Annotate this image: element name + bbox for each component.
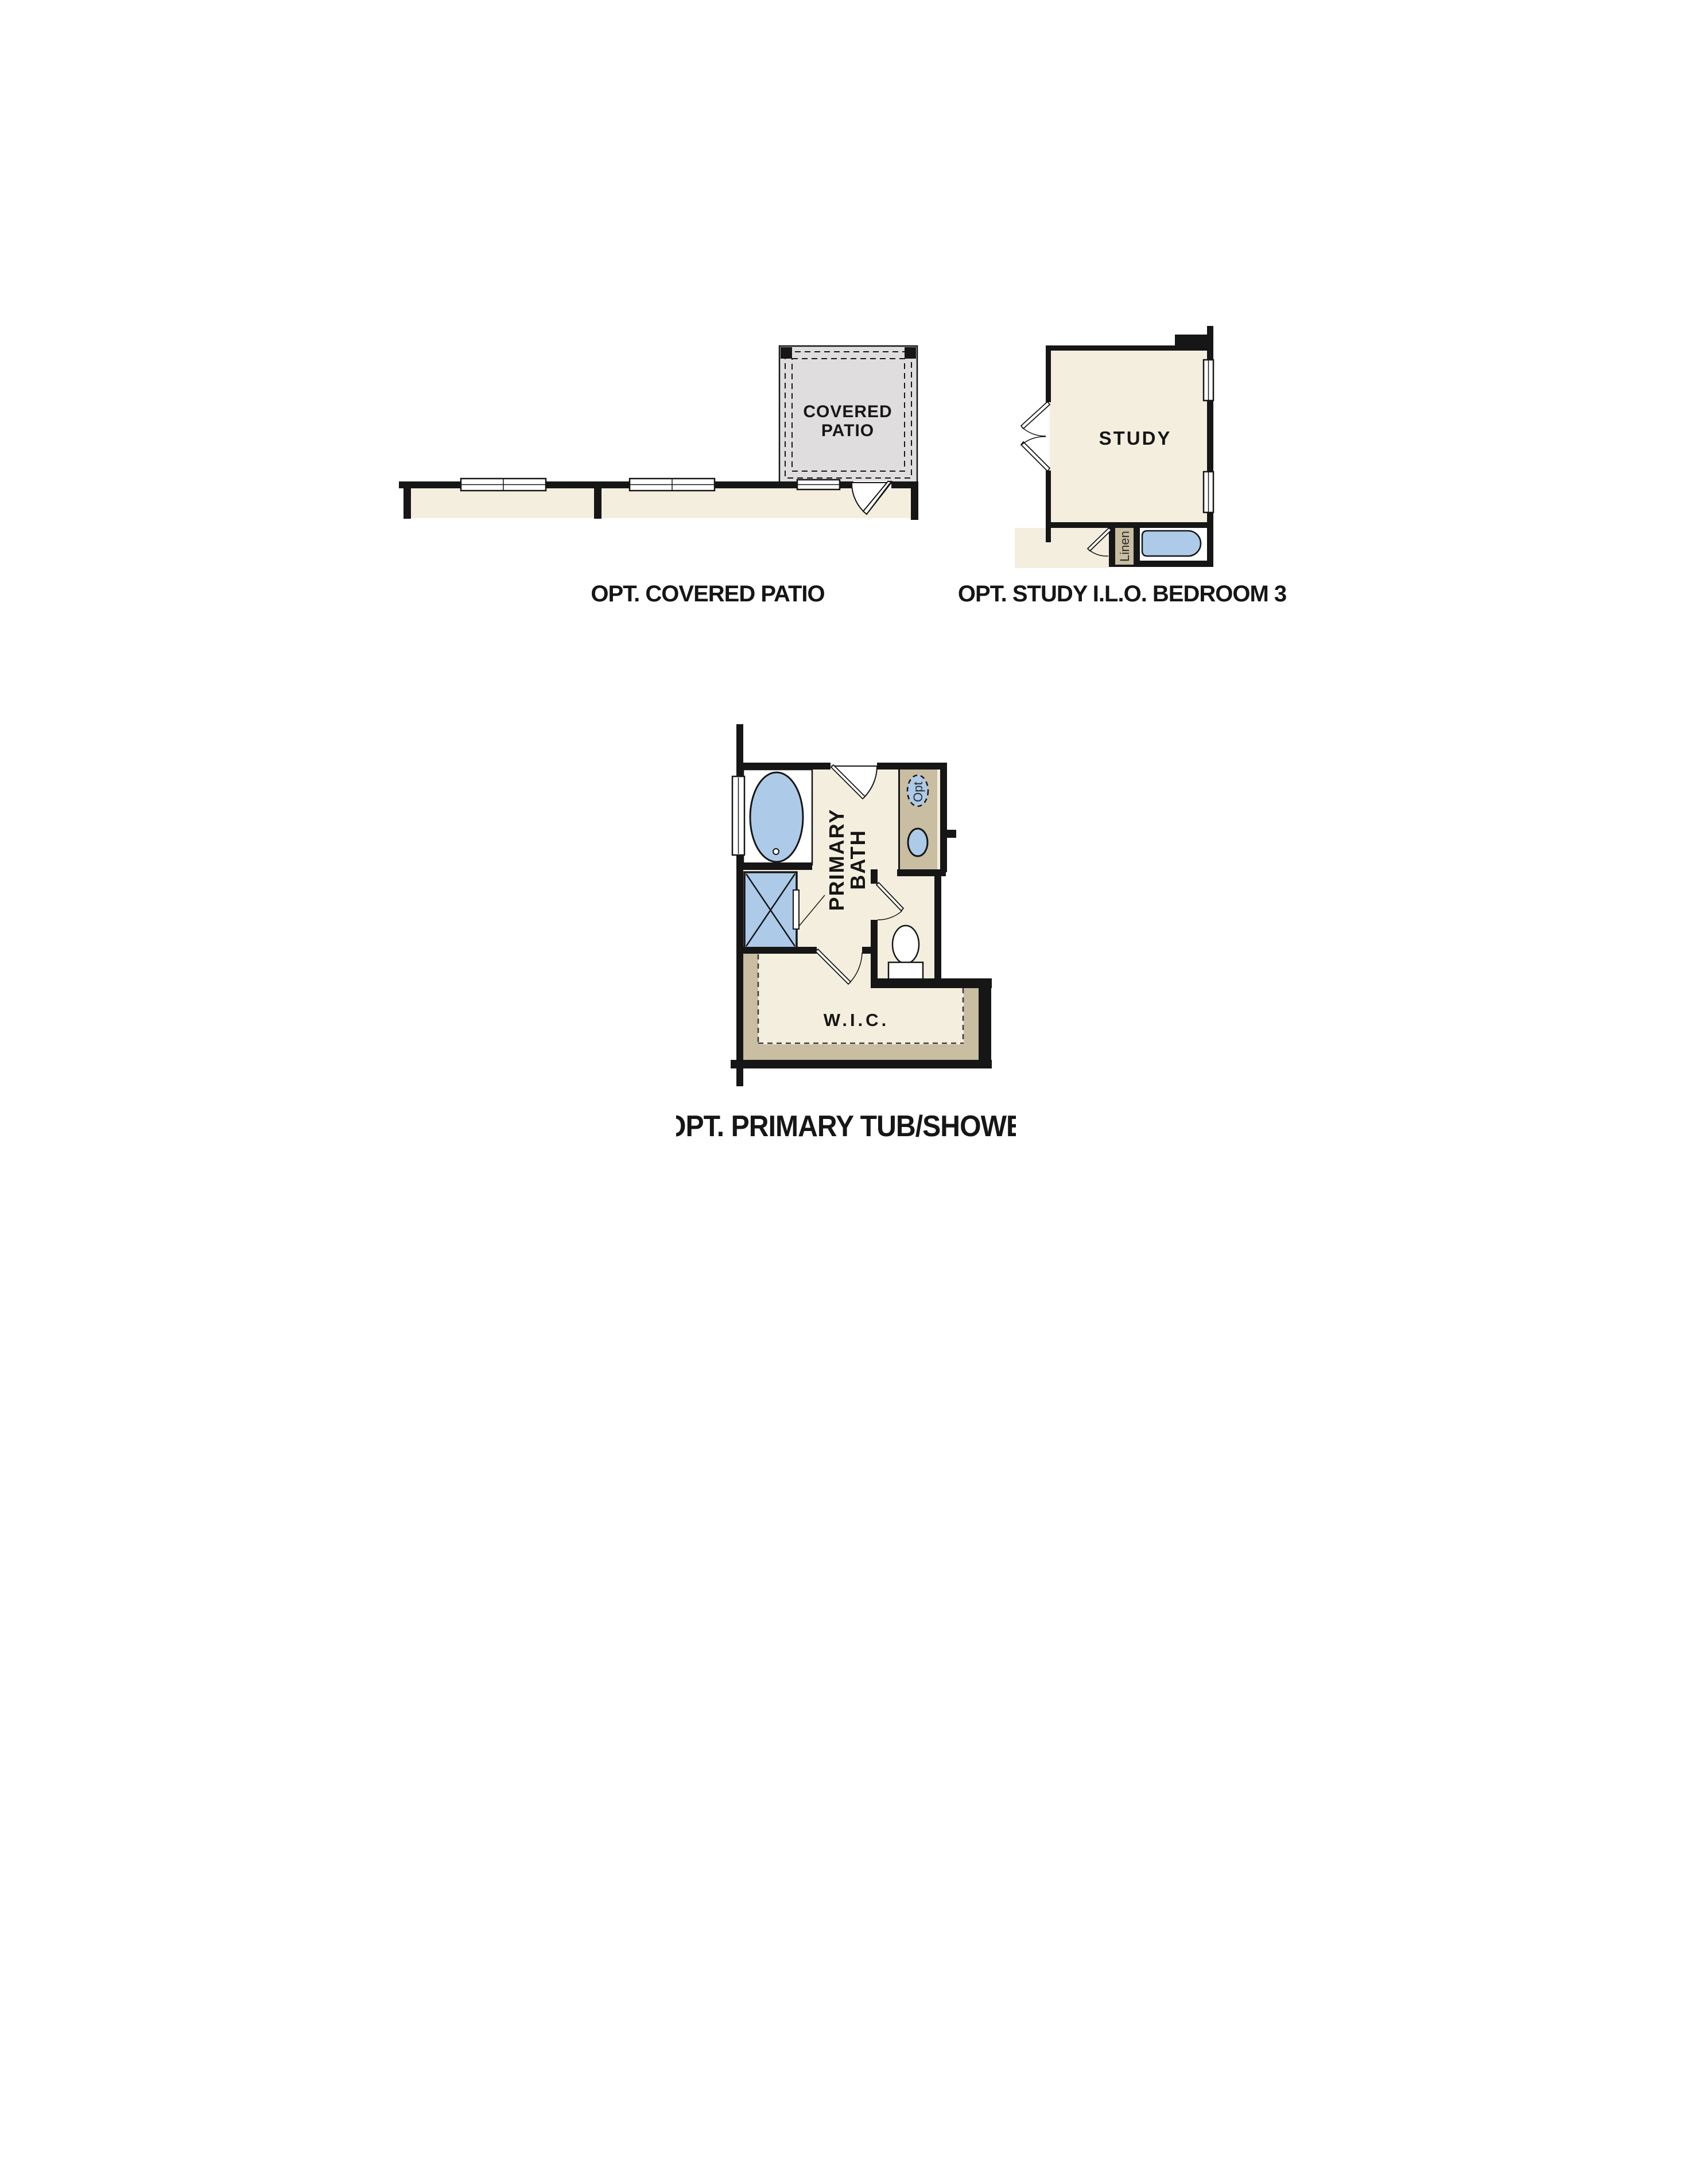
door-swing-arc	[1022, 427, 1046, 436]
door-leaf	[1021, 402, 1050, 429]
window	[797, 480, 840, 489]
study-caption: OPT. STUDY I.L.O. BEDROOM 3	[958, 581, 1286, 607]
study-room-label: STUDY	[1099, 428, 1172, 449]
shower-door	[793, 890, 799, 929]
wall-cap-right	[911, 481, 918, 520]
wall-jog	[947, 830, 956, 838]
window	[1204, 360, 1213, 401]
wall-notch	[1175, 335, 1207, 351]
covered-patio-caption: OPT. COVERED PATIO	[591, 581, 824, 607]
study-double-door	[1021, 402, 1050, 471]
window	[630, 479, 715, 491]
floorplan-options-page: COVERED PATIO OPT. COVERED PATIO	[0, 0, 1688, 2184]
wic-label: W.I.C.	[824, 1010, 889, 1030]
bathtub	[1142, 531, 1201, 556]
primary-bath-caption-clip: OPT. PRIMARY TUB/SHOWER	[665, 1110, 1043, 1143]
patio-room-label-line2: PATIO	[821, 421, 874, 440]
linen-label: Linen	[1117, 531, 1132, 562]
primary-bath-label-line2: BATH	[846, 829, 870, 889]
door-leaf	[1021, 442, 1050, 471]
window	[461, 479, 546, 491]
primary-bath-label-line1: PRIMARY	[825, 809, 848, 911]
primary-bath-plan: Opt	[665, 724, 1043, 1143]
opt-sink-label: Opt	[911, 782, 925, 802]
tub-drain	[773, 849, 779, 854]
covered-patio-plan: COVERED PATIO OPT. COVERED PATIO	[399, 346, 918, 607]
hall-floor	[1015, 528, 1109, 568]
wall-cap-left	[403, 481, 411, 519]
patio-room-label-line1: COVERED	[803, 402, 892, 421]
wall-divider	[594, 481, 602, 519]
vanity-sink	[908, 829, 928, 856]
patio-post-right	[905, 347, 916, 359]
window	[1204, 472, 1213, 512]
floorplan-drawing: COVERED PATIO OPT. COVERED PATIO	[0, 0, 1688, 2184]
house-interior-strip	[405, 487, 918, 518]
tub-platform-wall	[743, 862, 812, 870]
window	[732, 776, 744, 855]
primary-bath-caption: OPT. PRIMARY TUB/SHOWER	[665, 1110, 1043, 1143]
patio-post-left	[781, 347, 792, 359]
study-plan: Linen STUDY OPT. STUDY I.L.O. BEDROOM 3	[958, 326, 1286, 607]
